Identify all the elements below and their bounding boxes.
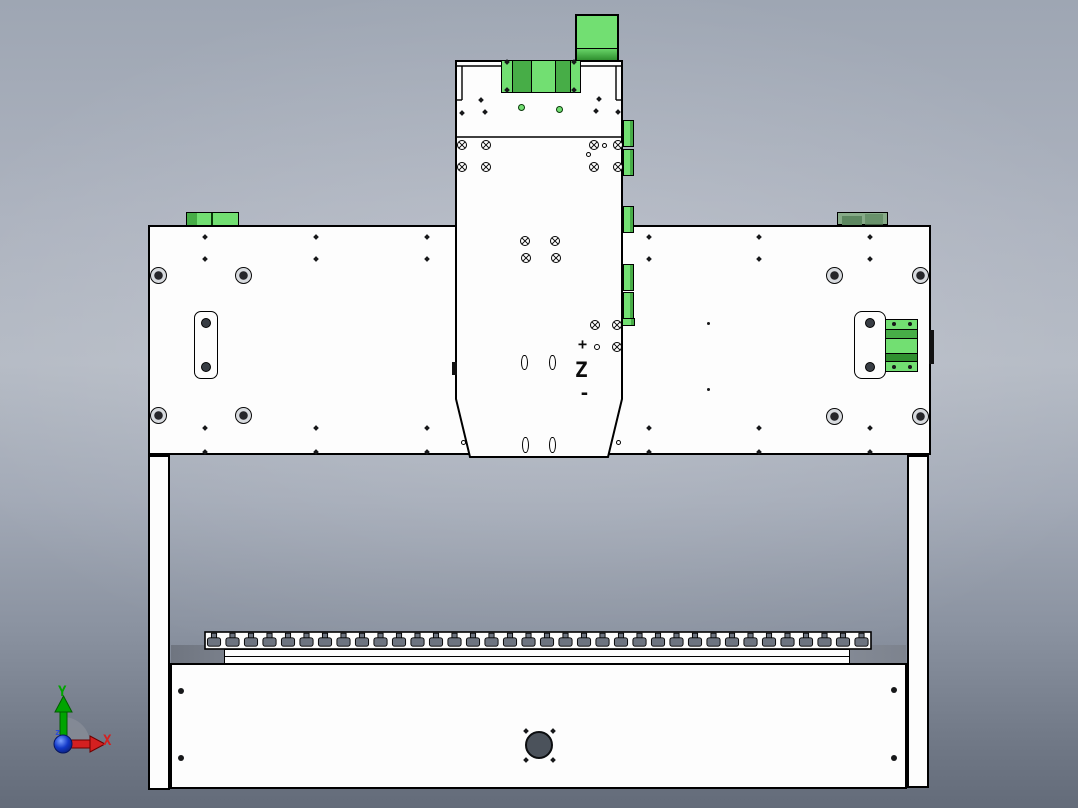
z-axis-mini-label: z <box>55 728 60 738</box>
y-axis-label: Y <box>58 684 66 700</box>
origin-triad <box>0 0 1078 808</box>
x-axis-label: X <box>103 733 111 749</box>
cad-viewport: + Z - <box>0 0 1078 808</box>
